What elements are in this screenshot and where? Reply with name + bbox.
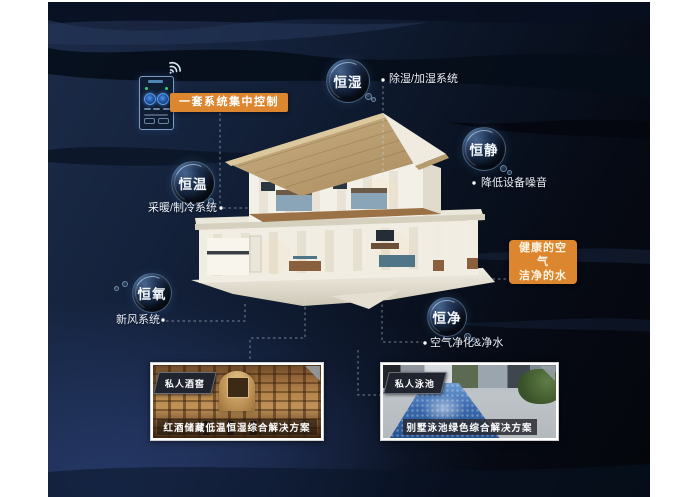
wine-cellar-tag-label: 私人酒窖 — [165, 377, 205, 390]
infographic-canvas: 一套系统集中控制 恒湿 恒静 恒温 恒氧 恒净 除湿/加湿系统 降低设备噪音 采… — [0, 0, 700, 497]
healthy-air-line: 健康的空气 — [514, 241, 572, 269]
decor-bubble — [114, 286, 119, 291]
callout-dehumidify: 除湿/加湿系统 — [389, 73, 458, 86]
wine-cellar-card: 私人酒窖 红酒储藏低温恒湿综合解决方案 — [150, 362, 324, 441]
clean-water-line: 洁净的水 — [514, 269, 572, 283]
bubble-label: 恒氧 — [138, 283, 167, 303]
bubble-heng-jing: 恒静 — [462, 127, 506, 171]
phone-label-row — [163, 108, 170, 110]
phone-status-led — [145, 87, 148, 90]
wine-art-frame — [227, 377, 249, 398]
bubble-heng-shi: 恒湿 — [326, 59, 370, 103]
wine-cellar-photo: 私人酒窖 红酒储藏低温恒湿综合解决方案 — [153, 365, 321, 438]
pool-caption: 别墅泳池绿色综合解决方案 — [402, 419, 536, 435]
decor-bubble — [500, 165, 507, 172]
callout-purify: 空气净化&净水 — [430, 337, 503, 350]
phone-status-led — [165, 87, 168, 90]
callout-hvac: 采暖/制冷系统 — [148, 202, 217, 215]
phone-button — [158, 118, 169, 124]
bubble-heng-jing2: 恒净 — [427, 297, 467, 337]
pool-tag-label: 私人泳池 — [395, 377, 435, 390]
phone-divider — [144, 114, 168, 116]
house-cutaway-illustration — [183, 98, 495, 310]
healthy-air-water-box: 健康的空气 洁净的水 — [509, 240, 577, 284]
phone-button — [144, 118, 155, 124]
corner-ribbon — [305, 366, 320, 381]
wifi-icon — [165, 57, 185, 77]
phone-header-bar — [148, 80, 163, 83]
pool-tag: 私人泳池 — [383, 372, 447, 394]
bubble-label: 恒温 — [179, 173, 208, 193]
decor-bubble — [507, 170, 512, 175]
pool-photo: 私人泳池 别墅泳池绿色综合解决方案 — [383, 365, 556, 438]
pool-card: 私人泳池 别墅泳池绿色综合解决方案 — [380, 362, 559, 441]
decor-bubble — [371, 97, 376, 102]
wine-cellar-caption: 红酒储藏低温恒湿综合解决方案 — [157, 419, 317, 435]
phone-dial-knob — [144, 93, 156, 105]
central-control-label: 一套系统集中控制 — [170, 93, 288, 112]
callout-noise: 降低设备噪音 — [481, 177, 547, 190]
phone-dial-knob — [157, 93, 169, 105]
bubble-label: 恒静 — [470, 139, 499, 159]
bubble-label: 恒湿 — [334, 71, 363, 91]
phone-label-row — [153, 108, 160, 110]
smart-controller-phone-icon — [139, 76, 174, 130]
corner-ribbon — [540, 366, 555, 381]
bubble-heng-yang: 恒氧 — [132, 273, 172, 313]
wine-cellar-tag: 私人酒窖 — [153, 372, 217, 394]
phone-label-row — [144, 108, 151, 110]
decor-bubble — [122, 281, 128, 287]
callout-fresh-air: 新风系统 — [116, 314, 160, 327]
bubble-label: 恒净 — [433, 307, 462, 327]
